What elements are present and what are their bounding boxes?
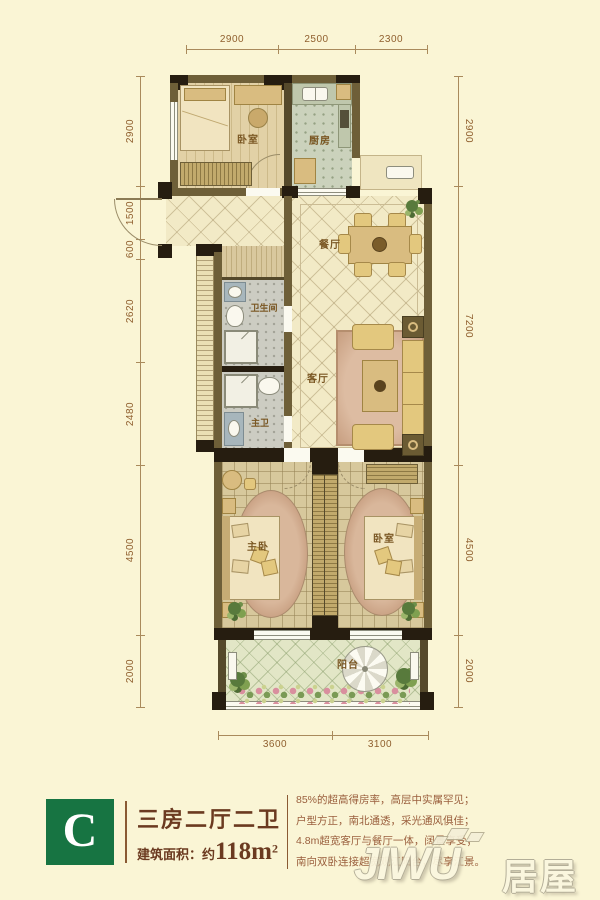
door-gap-master-bedroom [284, 448, 310, 462]
card-divider-2 [287, 795, 288, 869]
dim-tick [136, 186, 145, 187]
label-balcony: 阳台 [328, 656, 368, 671]
entry-door-arc [114, 199, 162, 246]
door-gap-bedroom-south [338, 448, 364, 462]
door-gap-master-bath [284, 416, 292, 442]
dim-right-3: 4500 [462, 520, 474, 580]
wall-pier [312, 462, 338, 474]
side-table-ring [408, 440, 418, 450]
wall-entry-pier [158, 244, 172, 258]
label-master-bedroom: 主卧 [238, 538, 278, 553]
shower-bathroom [224, 330, 258, 364]
area-prefix: 建筑面积：约 [137, 847, 215, 862]
label-dining: 餐厅 [310, 236, 350, 251]
dim-tick [428, 731, 429, 740]
wardrobe-divider [312, 474, 338, 616]
description-line-1: 85%的超高得房率，高层中实属罕见； [296, 790, 576, 811]
headboard-master [222, 516, 230, 600]
dim-right-2: 7200 [462, 296, 474, 356]
dim-tick [454, 186, 463, 187]
dim-tick [454, 635, 463, 636]
label-living: 客厅 [298, 370, 338, 385]
wall-corridor-bath [222, 277, 284, 280]
ac-unit-left [228, 652, 237, 680]
dim-top-1: 2900 [186, 34, 278, 45]
nightstand [410, 498, 424, 514]
dim-tick [136, 707, 145, 708]
kitchen-cart [294, 158, 316, 184]
wall-entry-pier [158, 182, 172, 199]
armchair-bottom [352, 424, 394, 450]
unit-title: 三房二厅二卫 [137, 802, 281, 834]
dim-tick [355, 45, 356, 54]
plant-corner-right [402, 602, 415, 615]
headboard-south [414, 516, 422, 600]
wall-pier [420, 692, 434, 710]
armchair-top [352, 324, 394, 350]
wall-east [424, 196, 432, 628]
area-superscript: 2 [272, 842, 278, 856]
floor-corridor [222, 246, 284, 280]
dim-left-6: 4500 [125, 520, 137, 580]
vanity-mirror [222, 470, 242, 490]
dim-left-5: 2480 [125, 384, 137, 444]
window-bedroom-north [170, 102, 178, 160]
ac-unit-right [410, 652, 419, 680]
dim-tick [427, 45, 428, 54]
dim-right-1: 2900 [462, 101, 474, 161]
slider-kitchen [296, 188, 346, 196]
dining-chair [388, 262, 406, 277]
dim-line-top [186, 49, 427, 50]
flower-bed [238, 684, 410, 704]
floor-foyer [166, 196, 284, 246]
slider-master-balcony [254, 630, 310, 640]
stove [340, 110, 349, 128]
watermark-logo-icon [465, 832, 485, 842]
wall-pier [212, 692, 226, 710]
dim-tick [278, 45, 279, 54]
label-bedroom-south: 卧室 [364, 530, 404, 545]
wall-kitchen-east [352, 83, 360, 158]
watermark: JIWU 居屋 [350, 820, 595, 898]
basin-bowl [228, 286, 242, 298]
dim-line-right [458, 76, 459, 707]
plant-dining [406, 200, 418, 212]
wardrobe-centerline [324, 474, 325, 616]
chair-north [248, 108, 268, 128]
dim-bottom-2: 3100 [332, 739, 428, 750]
dim-left-1: 2900 [125, 101, 137, 161]
wall-bath-west [214, 252, 222, 452]
dim-right-4: 2000 [462, 641, 474, 701]
area-value: 118m [215, 838, 272, 865]
throw-cushion [385, 559, 402, 576]
wall-pier [312, 616, 338, 628]
dim-tick [136, 362, 145, 363]
dining-chair [354, 262, 372, 277]
dim-tick [454, 76, 463, 77]
nightstand [222, 498, 236, 514]
wall-bedroom-kitchen [284, 83, 292, 188]
dim-tick [136, 76, 145, 77]
wall-bath-divider [222, 366, 284, 372]
dim-line-bottom [218, 735, 428, 736]
duct-shaft [196, 252, 214, 452]
sink-divider [315, 88, 316, 100]
area-row: 建筑面积：约118m2 [137, 838, 278, 866]
dim-left-4: 2620 [125, 281, 137, 341]
dim-tick [454, 465, 463, 466]
ac-unit-north [386, 166, 414, 179]
floorplan-page: 2900 2500 2300 2900 1500 600 2620 2480 4… [0, 0, 600, 900]
table-centerpiece [372, 237, 387, 252]
dim-tick [454, 707, 463, 708]
vanity-stool [244, 478, 256, 490]
card-divider-1 [125, 801, 127, 863]
label-kitchen: 厨房 [300, 132, 340, 147]
label-master-bath: 主卫 [240, 416, 280, 429]
dim-tick [136, 465, 145, 466]
pillow [231, 559, 249, 574]
throw-cushion [261, 559, 279, 577]
dim-tick [186, 45, 187, 54]
wall-pier [346, 186, 360, 198]
basin-bowl [228, 420, 240, 437]
dim-tick [136, 635, 145, 636]
entry-door-leaf [116, 198, 162, 200]
unit-letter-badge: C [46, 799, 114, 865]
plant-corner-left [228, 602, 241, 615]
wardrobe-south [366, 464, 418, 484]
dim-left-7: 2000 [125, 641, 137, 701]
pillow [231, 523, 250, 538]
fridge [336, 84, 351, 100]
table-decor [374, 380, 386, 392]
sofa-seam [403, 372, 423, 373]
side-table-ring [408, 322, 418, 332]
label-bathroom: 卫生间 [242, 301, 286, 314]
wardrobe-north [180, 162, 252, 186]
watermark-cjk-text: 居屋 [502, 848, 578, 900]
wall-pier [418, 188, 432, 204]
desk-north [234, 85, 282, 105]
label-bedroom-north: 卧室 [226, 131, 270, 146]
dim-line-left [140, 76, 141, 707]
shower-master-bath [224, 374, 258, 408]
dim-top-3: 2300 [355, 34, 427, 45]
pillow-north [184, 88, 226, 101]
watermark-latin-text: JIWU [354, 838, 459, 890]
toilet-master-bath [258, 377, 280, 395]
dim-top-2: 2500 [278, 34, 355, 45]
wall-bedroom-north-side [214, 448, 432, 462]
slider-bedroom-balcony [350, 630, 402, 640]
dining-chair [409, 234, 422, 254]
sofa-long [402, 340, 424, 436]
door-gap-bedroom-north [246, 188, 280, 196]
dim-bottom-1: 3600 [218, 739, 332, 750]
sofa-seam [403, 404, 423, 405]
dim-tick [136, 259, 145, 260]
wall-bedroom-west [214, 462, 222, 628]
